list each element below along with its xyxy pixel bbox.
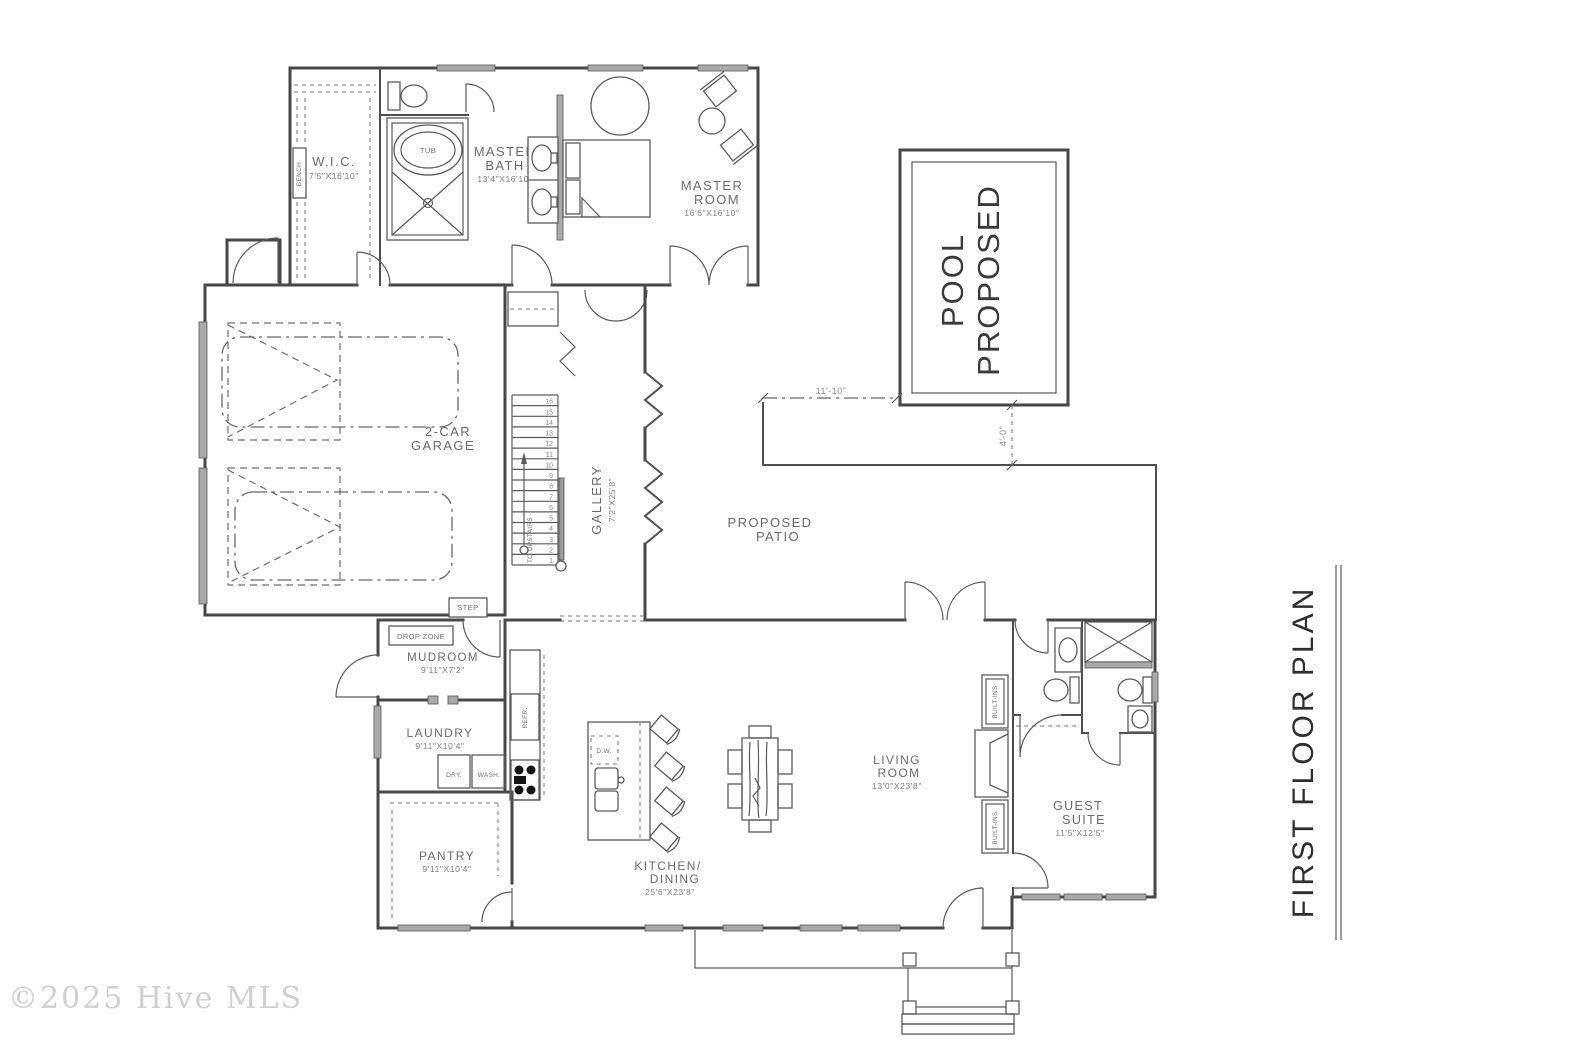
vanity-faucet-2	[551, 197, 557, 207]
range-control	[514, 776, 526, 784]
garage-entry-door	[233, 238, 278, 283]
master-bath-label-1: MASTER	[474, 144, 537, 159]
fireplace	[975, 730, 1008, 797]
guest-window-3	[1106, 894, 1146, 900]
wic-dims: 7'5"X16'10"	[309, 171, 359, 181]
guest-label-2: SUITE	[1062, 813, 1106, 827]
kitchen-window-2	[723, 925, 763, 931]
mudroom-label: MUDROOM	[407, 652, 479, 664]
patio-label-1: PROPOSED	[728, 515, 813, 530]
master-bath-label-2: BATH	[485, 158, 524, 173]
burner	[527, 766, 536, 775]
pantry-label: PANTRY	[419, 849, 475, 863]
kitchen-window-3	[800, 925, 842, 931]
bar-stool	[654, 751, 687, 783]
closet-bifold-door	[560, 332, 575, 376]
garage-door-1	[199, 322, 207, 458]
living-label-1: LIVING	[873, 753, 921, 767]
mudroom-exterior-door	[336, 655, 378, 697]
linen-closet-track	[1085, 662, 1152, 668]
island-sink-basin-1	[595, 768, 618, 789]
pantry-door	[482, 888, 512, 922]
car-2-stall	[228, 468, 340, 585]
porch-step-1	[902, 1014, 1014, 1024]
bed-pillow-1	[566, 143, 580, 178]
east-window	[1152, 672, 1158, 702]
burner	[515, 766, 524, 775]
living-label-2: ROOM	[878, 766, 921, 780]
laundry-jamb-1	[428, 696, 438, 704]
kitchen-dining: REFR. D.W. KITCHEN/ DINING 25'6"X23'8"	[505, 582, 1155, 931]
stair-number: 2	[549, 547, 553, 554]
built-ins-lower-label: BUILT-INS	[992, 811, 999, 845]
gallery-double-doors	[585, 290, 647, 321]
rear-porch	[695, 930, 1019, 1034]
guest-window-2	[1064, 894, 1102, 900]
master-room-label-1: MASTER	[681, 178, 744, 193]
stair-number: 13	[545, 431, 553, 438]
pool-label-2: PROPOSED	[971, 184, 1006, 376]
tub-label: TUB	[420, 146, 436, 155]
stair-number: 8	[549, 484, 553, 491]
garage-door-2	[199, 468, 207, 604]
porch-post	[903, 1001, 916, 1014]
wic-door	[357, 252, 390, 285]
title-underline	[1336, 565, 1341, 940]
burner	[527, 786, 536, 795]
bar-stool	[649, 822, 682, 854]
bar-stool	[649, 714, 682, 746]
island-faucet	[618, 777, 624, 783]
patio-edge	[763, 403, 1156, 620]
guest-bath-door	[1088, 733, 1120, 765]
proposed-pool: POOL PROPOSED	[900, 150, 1068, 405]
bed-fold	[582, 198, 600, 217]
gallery-label: GALLERY	[589, 465, 604, 535]
stairs-and-gallery: 16 15 14 13 12 11 10 9 8 7 6 5 4 3 2 1 T…	[508, 285, 662, 621]
vanity-faucet-1	[551, 153, 557, 163]
dining-chair-bottom	[749, 820, 771, 832]
master-bath-door	[512, 245, 552, 285]
living-dims: 13'0"X23'8"	[872, 781, 922, 791]
master-window-2	[588, 65, 643, 71]
stair-number: 1	[549, 558, 553, 565]
stair-number: 6	[549, 505, 553, 512]
hall-bath-toilet-tank	[1070, 677, 1079, 703]
hall-bath-toilet-bowl	[1044, 679, 1068, 701]
dining-chair-right-1	[778, 750, 792, 774]
guest-label-1: GUEST	[1053, 799, 1103, 813]
shower-enclosure-inner	[392, 123, 463, 235]
kitchen-window-1	[645, 925, 683, 931]
porch-outline	[695, 930, 1012, 1007]
kitchen-label-1: KITCHEN/	[634, 859, 701, 873]
pantry-dims: 9'11"X10'4"	[422, 864, 471, 874]
stair-number: 7	[549, 494, 553, 501]
stair-number: 3	[549, 537, 553, 544]
bath-hall-door	[1015, 620, 1048, 653]
stair-number: 5	[549, 516, 553, 523]
patio-width-dim: 11'-10"	[816, 386, 847, 396]
car-1-chevron	[228, 325, 337, 437]
guest-bath-sink	[1132, 710, 1148, 728]
gallery-dims: 7'2"X25'8"	[607, 478, 617, 523]
master-room-double-doors	[670, 246, 748, 285]
dishwasher-label: D.W.	[596, 748, 611, 755]
armchair-1	[700, 72, 738, 109]
bench-label: BENCH	[296, 162, 303, 186]
guest-window-1	[1022, 894, 1060, 900]
master-bath-dims: 13'4"X16'10"	[477, 174, 532, 184]
gallery-cased-opening	[560, 616, 645, 621]
stair-number: 9	[549, 473, 553, 480]
baths-and-guest-suite: GUEST SUITE 11'5"X12'5"	[1013, 620, 1158, 900]
hall-bath-sink	[1059, 638, 1077, 662]
wic-label: W.I.C.	[312, 154, 356, 169]
bar-stool	[654, 786, 687, 818]
stair-number: 11	[546, 452, 553, 459]
pool-offset-dim: 4'-0"	[998, 426, 1008, 446]
porch-post	[903, 953, 916, 966]
stair-number: 15	[545, 409, 553, 416]
laundry-jamb-2	[448, 696, 458, 704]
master-suite: BENCH W.I.C. 7'5"X16'10" TUB MASTER BATH…	[290, 65, 758, 285]
car-2-chevron	[228, 470, 340, 583]
dining-chair-top	[749, 726, 771, 738]
dining-chair-left-1	[728, 750, 742, 774]
stair-number: 14	[545, 420, 553, 427]
step-label: STEP	[457, 603, 478, 612]
sheet-title: FIRST FLOOR PLAN	[1287, 586, 1320, 919]
laundry-window	[374, 706, 381, 758]
patio-label-2: PATIO	[756, 529, 800, 544]
guest-closet-door	[1013, 853, 1048, 888]
drop-zone-label: DROP ZONE	[397, 632, 445, 641]
master-toilet-tank	[388, 82, 400, 110]
side-table	[699, 108, 725, 134]
sheet-annotations: FIRST FLOOR PLAN ©2025 Hive MLS	[8, 565, 1341, 1016]
refrigerator-label: REFR.	[522, 708, 529, 729]
porch-post	[1006, 1001, 1019, 1014]
garage-label-1: 2-CAR	[425, 424, 471, 439]
kitchen-label-2: DINING	[650, 872, 700, 886]
living-room: LIVING ROOM 13'0"X23'8" BUILT-INS BUILT-…	[872, 675, 1008, 853]
gallery-window-chevrons-1	[645, 372, 662, 428]
stair-number: 10	[545, 462, 553, 469]
guest-bath-toilet-bowl	[1118, 679, 1142, 701]
dining-chair-right-2	[778, 784, 792, 808]
guest-dims: 11'5"X12'5"	[1055, 828, 1104, 838]
floor-plan-canvas: BENCH W.I.C. 7'5"X16'10" TUB MASTER BATH…	[0, 0, 1586, 1058]
toilet-room-door	[466, 84, 494, 112]
stair-number: 4	[549, 526, 553, 533]
patio-double-doors	[905, 582, 985, 620]
master-room-dims: 16'6"X16'10"	[684, 208, 739, 218]
stair-number: 16	[545, 399, 553, 406]
armchair-2	[719, 128, 757, 165]
garage: 2-CAR GARAGE STEP	[199, 238, 505, 617]
proposed-patio: 11'-10" 4'-0" PROPOSED PATIO	[728, 386, 1156, 620]
master-window-1	[437, 65, 495, 71]
stair-handrail	[559, 478, 564, 560]
stair-number: 12	[545, 441, 553, 448]
guest-bath-toilet-tank	[1143, 677, 1152, 703]
dining-table-grain	[749, 740, 767, 818]
to-upstairs-label: TO UPSTAIRS	[527, 517, 534, 563]
washer-label: WASH.	[478, 772, 501, 779]
floor-plan-drawing: BENCH W.I.C. 7'5"X16'10" TUB MASTER BATH…	[0, 0, 1586, 1058]
pool-label-1: POOL	[935, 233, 970, 327]
porch-post	[1006, 953, 1019, 966]
dining-chair-left-2	[728, 784, 742, 808]
bedroom-rug	[591, 77, 649, 135]
gallery-window-chevrons-2	[645, 460, 662, 544]
burner	[515, 786, 524, 795]
fireplace-firebox	[990, 734, 1008, 793]
pantry-window	[398, 925, 470, 931]
kitchen-dims: 25'6"X23'8"	[645, 887, 695, 897]
built-ins-upper-label: BUILT-INS	[992, 685, 999, 719]
kitchen-island	[588, 722, 650, 840]
stair-newel	[556, 561, 566, 571]
car-1-stall	[228, 323, 340, 440]
garage-label-2: GARAGE	[411, 438, 475, 453]
guest-suite-door	[1020, 715, 1062, 757]
mudroom-dims: 9'11"X7'2"	[421, 665, 465, 675]
car-2-outline	[235, 492, 452, 580]
kitchen-window-4	[858, 925, 900, 931]
porch-step-2	[902, 1024, 1014, 1034]
linen-closet-x	[1085, 622, 1152, 662]
watermark: ©2025 Hive MLS	[8, 981, 303, 1016]
stair-arrow-head	[521, 452, 527, 464]
island-sink-basin-2	[595, 791, 618, 811]
laundry-dims: 9'11"X10'4"	[415, 741, 464, 751]
shower-glass-x	[392, 172, 463, 235]
dining-table	[742, 738, 778, 820]
master-toilet-bowl	[401, 85, 427, 107]
master-window-3	[698, 65, 748, 71]
rear-entry-door	[943, 888, 983, 928]
laundry-label: LAUNDRY	[407, 726, 474, 740]
master-room-label-2: ROOM	[694, 192, 740, 207]
dryer-label: DRY.	[446, 772, 462, 779]
bed-pillow-2	[566, 180, 580, 214]
